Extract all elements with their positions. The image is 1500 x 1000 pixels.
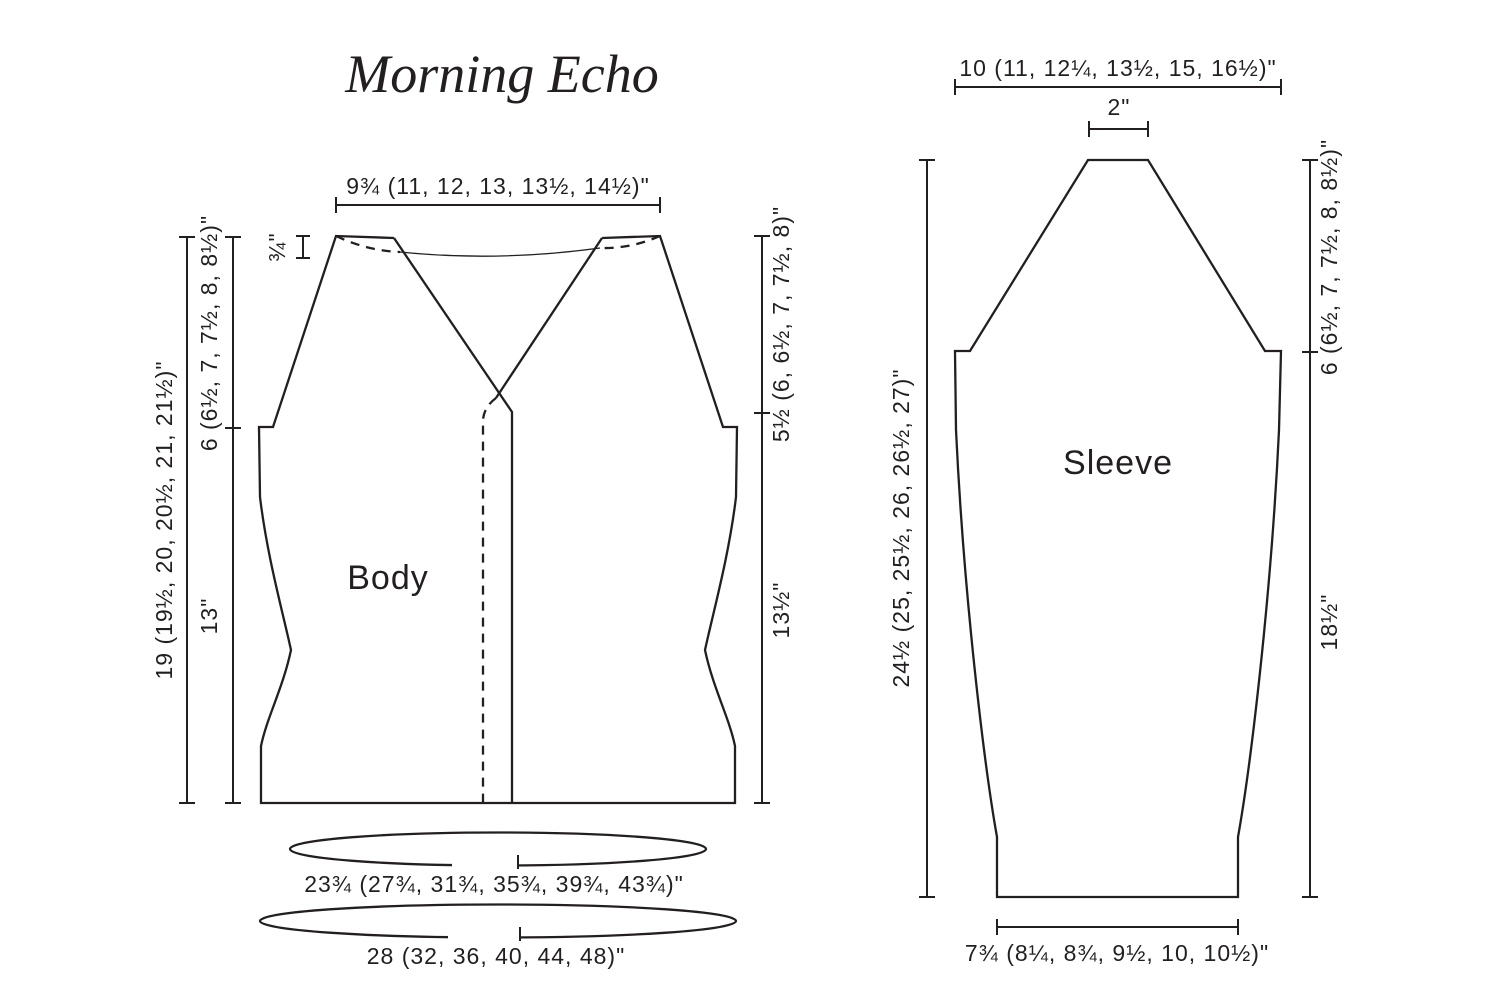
body-hidden-front-edge-dashed — [483, 398, 496, 803]
sleeve-total-length-measure: 24½ (25, 25½, 26, 26½, 27)" — [888, 160, 935, 897]
body-right-front-diagonal — [496, 238, 602, 398]
body-total-length-measure: 19 (19½, 20, 20½, 21, 21½)" — [151, 237, 195, 803]
body-top-width-line — [336, 197, 660, 213]
schematic-svg: Morning Echo Body 9¾ (11, 12, 13, 13½, 1… — [0, 0, 1500, 1000]
sleeve-top-width-label: 10 (11, 12¼, 13½, 15, 16½)" — [959, 55, 1276, 81]
pattern-title: Morning Echo — [344, 44, 658, 104]
body-length-left-label: 13" — [196, 598, 222, 635]
sleeve-top-width-line — [955, 79, 1281, 95]
sleeve-saddle-label: 2" — [1108, 94, 1131, 120]
hem-circumference-label: 28 (32, 36, 40, 44, 48)" — [367, 943, 626, 969]
body-top-width-measure: 9¾ (11, 12, 13, 13½, 14½)" — [336, 173, 660, 213]
sleeve-outline — [955, 160, 1281, 897]
body-shoulder-drop-measure: ¾" — [264, 232, 310, 261]
body-right-sections-measure: 5½ (6, 6½, 7, 7½, 8)" 13½" — [754, 206, 794, 803]
sleeve-saddle-line — [1089, 121, 1148, 137]
sleeve-lower-length-label: 18½" — [1316, 594, 1342, 651]
body-hem-circumference: 28 (32, 36, 40, 44, 48)" — [260, 905, 736, 970]
body-label: Body — [347, 559, 429, 597]
body-total-length-label: 19 (19½, 20, 20½, 21, 21½)" — [151, 360, 177, 679]
sleeve-total-length-line — [919, 160, 935, 897]
body-shoulder-drop-label: ¾" — [264, 232, 290, 261]
body-total-length-line — [179, 237, 195, 803]
sleeve-right-sections-measure: 6 (6½, 7, 7½, 8, 8½)" 18½" — [1302, 139, 1342, 897]
body-shoulder-drop-bracket — [296, 236, 310, 258]
body-outline — [259, 236, 737, 803]
sleeve-cuff-label: 7¾ (8¼, 8¾, 9½, 10, 10½)" — [965, 940, 1269, 966]
sleeve-piece: Sleeve 10 (11, 12¼, 13½, 15, 16½)" 2" 24… — [888, 55, 1342, 966]
hem-ellipse-gap — [448, 929, 519, 944]
body-top-width-label: 9¾ (11, 12, 13, 13½, 14½)" — [346, 173, 650, 199]
sleeve-total-length-label: 24½ (25, 25½, 26, 26½, 27)" — [888, 368, 914, 687]
body-armhole-depth-left-label: 6 (6½, 7, 7½, 8, 8½)" — [196, 215, 222, 451]
body-left-front-edge — [394, 238, 512, 803]
sleeve-top-width-measure: 10 (11, 12¼, 13½, 15, 16½)" — [955, 55, 1281, 95]
body-left-sections-measure: 6 (6½, 7, 7½, 8, 8½)" 13" — [196, 215, 241, 803]
body-armhole-depth-right-label: 5½ (6, 6½, 7, 7½, 8)" — [768, 206, 794, 442]
body-bust-circumference: 23¾ (27¾, 31¾, 35¾, 39¾, 43¾)" — [290, 833, 706, 898]
body-back-neck-curve — [400, 248, 600, 256]
sleeve-saddle-measure: 2" — [1089, 94, 1148, 137]
body-length-right-label: 13½" — [768, 582, 794, 639]
sleeve-cap-height-label: 6 (6½, 7, 7½, 8, 8½)" — [1316, 139, 1342, 375]
body-left-sections-line — [225, 237, 241, 803]
bust-ellipse-gap — [452, 856, 517, 871]
body-piece: Body 9¾ (11, 12, 13, 13½, 14½)" ¾" 19 (1… — [151, 173, 794, 969]
sleeve-label: Sleeve — [1063, 444, 1173, 482]
bust-circumference-label: 23¾ (27¾, 31¾, 35¾, 39¾, 43¾)" — [304, 871, 684, 897]
sleeve-cuff-measure: 7¾ (8¼, 8¾, 9½, 10, 10½)" — [965, 919, 1269, 966]
knitting-pattern-schematic: Morning Echo Body 9¾ (11, 12, 13, 13½, 1… — [0, 0, 1500, 1000]
sleeve-cuff-line — [997, 919, 1238, 935]
